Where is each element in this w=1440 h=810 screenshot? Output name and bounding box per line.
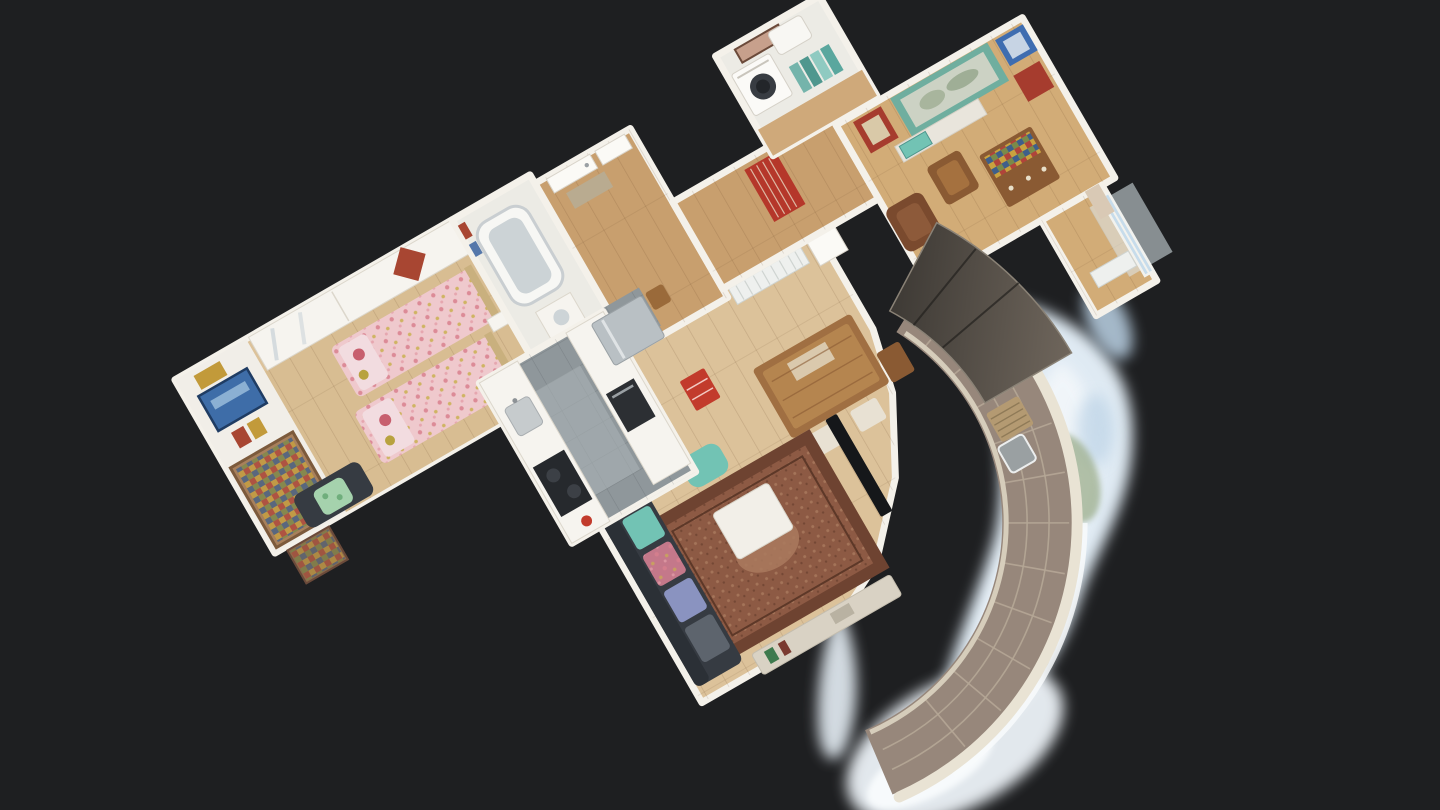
dollhouse-3d-canvas[interactable] (0, 0, 1440, 810)
viewer-stage: Top-down dollhouse view of a 3D-scanned … (0, 0, 1440, 810)
